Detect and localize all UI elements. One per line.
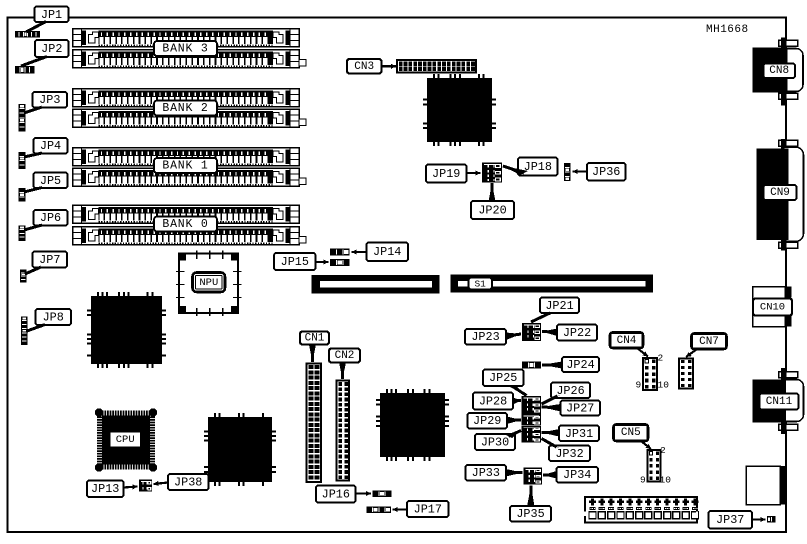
svg-text:BANK 0: BANK 0 — [162, 218, 208, 231]
svg-text:BANK 2: BANK 2 — [162, 102, 208, 115]
svg-text:JP36: JP36 — [592, 165, 620, 179]
svg-text:JP30: JP30 — [481, 436, 509, 450]
svg-text:JP3: JP3 — [39, 93, 60, 107]
svg-text:CN4: CN4 — [617, 335, 637, 347]
svg-text:JP16: JP16 — [322, 488, 350, 502]
svg-text:JP13: JP13 — [91, 482, 119, 496]
svg-text:JP17: JP17 — [414, 503, 442, 517]
svg-text:JP18: JP18 — [524, 160, 552, 174]
svg-text:JP28: JP28 — [479, 395, 507, 409]
svg-text:BANK 1: BANK 1 — [162, 160, 208, 173]
svg-text:CN5: CN5 — [621, 427, 641, 439]
svg-text:JP20: JP20 — [478, 204, 506, 218]
svg-text:CN7: CN7 — [699, 336, 719, 348]
svg-text:9: 9 — [640, 475, 646, 486]
svg-text:JP33: JP33 — [472, 466, 500, 480]
svg-text:JP6: JP6 — [40, 211, 61, 225]
svg-text:JP26: JP26 — [556, 384, 584, 398]
svg-text:JP38: JP38 — [174, 476, 202, 490]
svg-text:JP27: JP27 — [566, 402, 594, 416]
svg-text:JP22: JP22 — [563, 326, 591, 340]
svg-text:JP34: JP34 — [563, 468, 591, 482]
svg-text:JP4: JP4 — [40, 139, 61, 153]
svg-text:BANK 3: BANK 3 — [162, 43, 208, 56]
svg-text:JP1: JP1 — [41, 8, 62, 22]
svg-text:JP35: JP35 — [516, 507, 544, 521]
svg-text:JP15: JP15 — [281, 255, 309, 269]
svg-text:JP23: JP23 — [471, 330, 499, 344]
svg-text:JP7: JP7 — [39, 253, 60, 267]
svg-text:10: 10 — [660, 475, 672, 486]
svg-text:JP24: JP24 — [566, 358, 594, 372]
svg-text:JP25: JP25 — [489, 371, 517, 385]
svg-text:CPU: CPU — [116, 434, 135, 446]
svg-text:JP14: JP14 — [373, 245, 401, 259]
svg-text:CN8: CN8 — [769, 65, 789, 77]
svg-text:JP29: JP29 — [473, 414, 501, 428]
svg-text:CN1: CN1 — [305, 333, 325, 345]
svg-text:JP37: JP37 — [716, 513, 744, 527]
svg-text:10: 10 — [658, 380, 670, 391]
svg-text:JP5: JP5 — [40, 174, 61, 188]
svg-text:CN10: CN10 — [760, 302, 785, 314]
svg-text:2: 2 — [658, 353, 664, 364]
svg-text:JP2: JP2 — [41, 42, 62, 56]
svg-text:MH1668: MH1668 — [706, 24, 749, 36]
svg-text:JP21: JP21 — [545, 299, 573, 313]
svg-text:9: 9 — [636, 380, 642, 391]
svg-text:CN3: CN3 — [354, 61, 374, 73]
svg-text:JP32: JP32 — [555, 447, 583, 461]
svg-text:JP19: JP19 — [432, 167, 460, 181]
svg-text:2: 2 — [660, 445, 666, 456]
svg-text:NPU: NPU — [199, 277, 218, 289]
svg-text:CN11: CN11 — [766, 396, 793, 408]
svg-text:CN2: CN2 — [335, 350, 355, 362]
svg-text:JP31: JP31 — [565, 427, 593, 441]
svg-text:JP8: JP8 — [43, 311, 64, 325]
svg-text:S1: S1 — [474, 279, 486, 290]
svg-text:CN9: CN9 — [770, 187, 790, 199]
